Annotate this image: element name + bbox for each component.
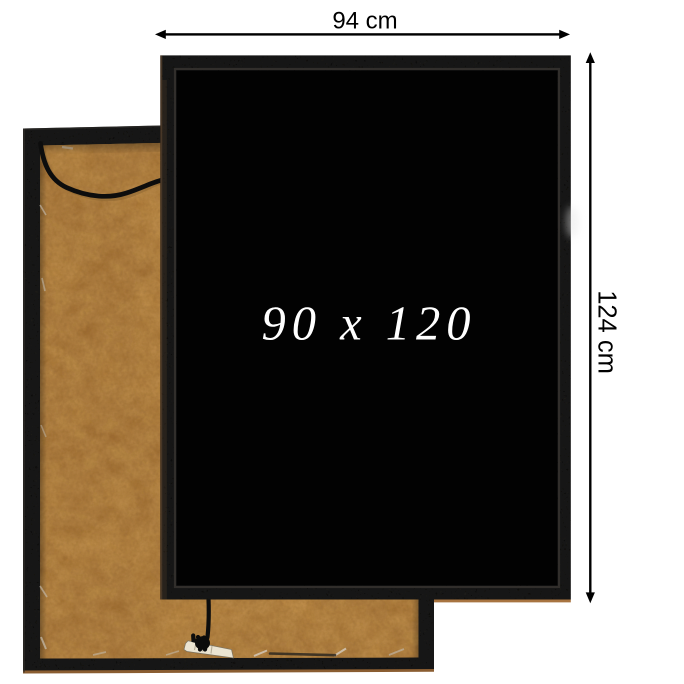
svg-text:94 cm: 94 cm [332,8,397,35]
svg-text:90 x 120: 90 x 120 [261,298,476,351]
svg-text:124 cm: 124 cm [593,290,621,374]
